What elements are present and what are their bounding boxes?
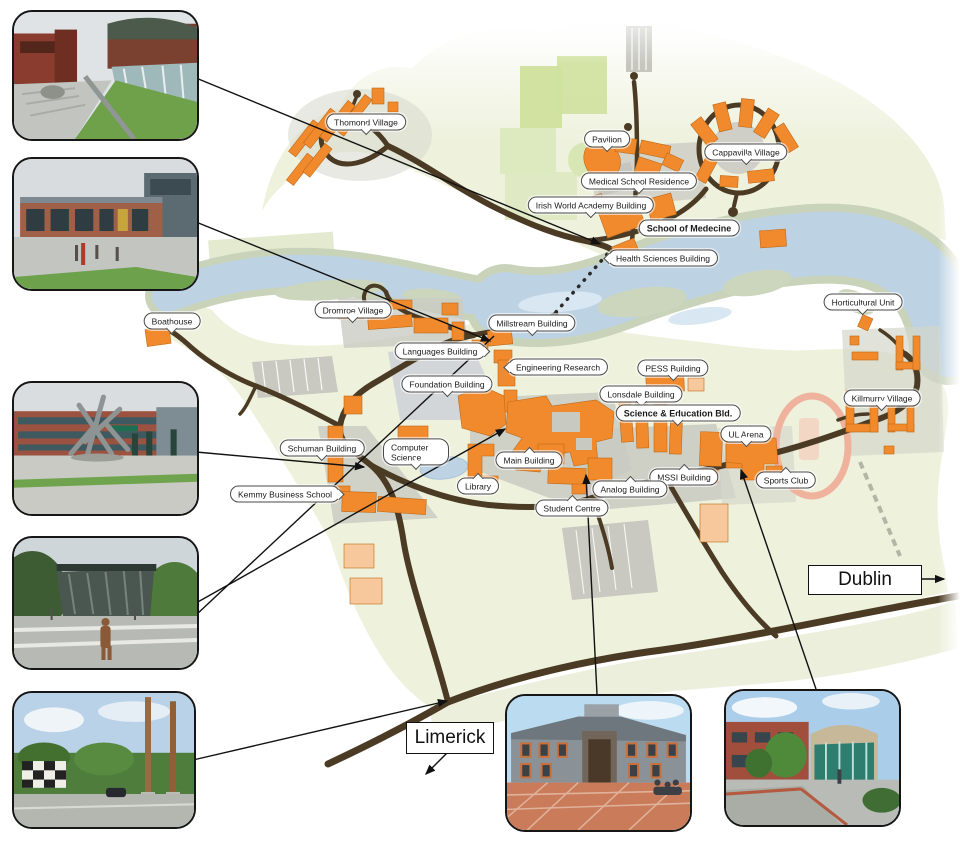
map-label-dromroe-village: Dromroe Village [315,302,392,319]
map-label-kemmy-business-school: Kemmy Business School [230,486,340,503]
photo-inset-entrance-flagpoles [12,691,196,829]
sign-dublin: Dublin [808,565,922,595]
photo-7-art [726,691,899,825]
map-label-computer-science: Computer Science [383,438,449,465]
photo-6-art [507,696,690,830]
limerick-arrow-icon [426,753,447,774]
right-fade [938,0,960,848]
photo-inset-irish-world-academy [12,10,199,141]
photo-5-art [14,693,194,827]
photo-2-art [14,159,197,289]
map-label-boathouse: Boathouse [144,313,201,330]
map-label-pavilion: Pavilion [584,131,630,148]
map-label-lonsdale-building: Lonsdale Building [599,386,682,403]
map-label-thomond-village: Thomond Village [326,114,406,131]
map-label-engineering-research: Engineering Research [508,359,608,376]
map-label-millstream-building: Millstream Building [488,315,575,332]
photo-inset-statue-walkway [12,536,199,670]
map-label-school-of-medecine: School of Medecine [639,220,740,237]
map-label-main-building: Main Building [495,452,562,469]
map-label-pess-building: PESS Building [637,360,708,377]
map-label-killmurry-village: Killmurry Village [844,390,921,407]
photo-inset-glass-rotunda-building [724,689,901,827]
photo-3-art [14,383,197,514]
map-label-ul-arena: UL Arena [720,426,771,443]
photo-inset-brick-courtyard-building [12,157,199,291]
map-label-medical-school-residence: Medical School Residence [581,173,697,190]
map-label-science-education-bld: Science & Education Bld. [616,405,741,422]
photo-1-art [14,12,197,139]
photo-inset-sculpture-plaza [12,381,199,516]
map-label-student-centre: Student Centre [535,500,608,517]
map-label-foundation-building: Foundation Building [401,376,492,393]
map-label-schuman-building: Schuman Building [280,440,365,457]
map-label-sports-club: Sports Club [756,472,816,489]
map-label-cappavilla-village: Cappavilla Village [704,144,787,161]
map-label-health-sciences-building: Health Sciences Building [608,250,718,267]
map-label-irish-world-academy-building: Irish World Academy Building [528,197,654,214]
map-label-analog-building: Analog Building [592,481,667,498]
photo-4-art [14,538,197,668]
campus-map-page: Dublin Limerick Thomond VillagePavilionC… [0,0,960,848]
map-label-languages-building: Languages Building [395,343,486,360]
sign-limerick: Limerick [406,722,494,754]
photo-inset-stone-building-plaza [505,694,692,832]
map-label-library: Library [457,478,499,495]
map-label-horticultural-unit: Horticultural Unit [824,294,903,311]
